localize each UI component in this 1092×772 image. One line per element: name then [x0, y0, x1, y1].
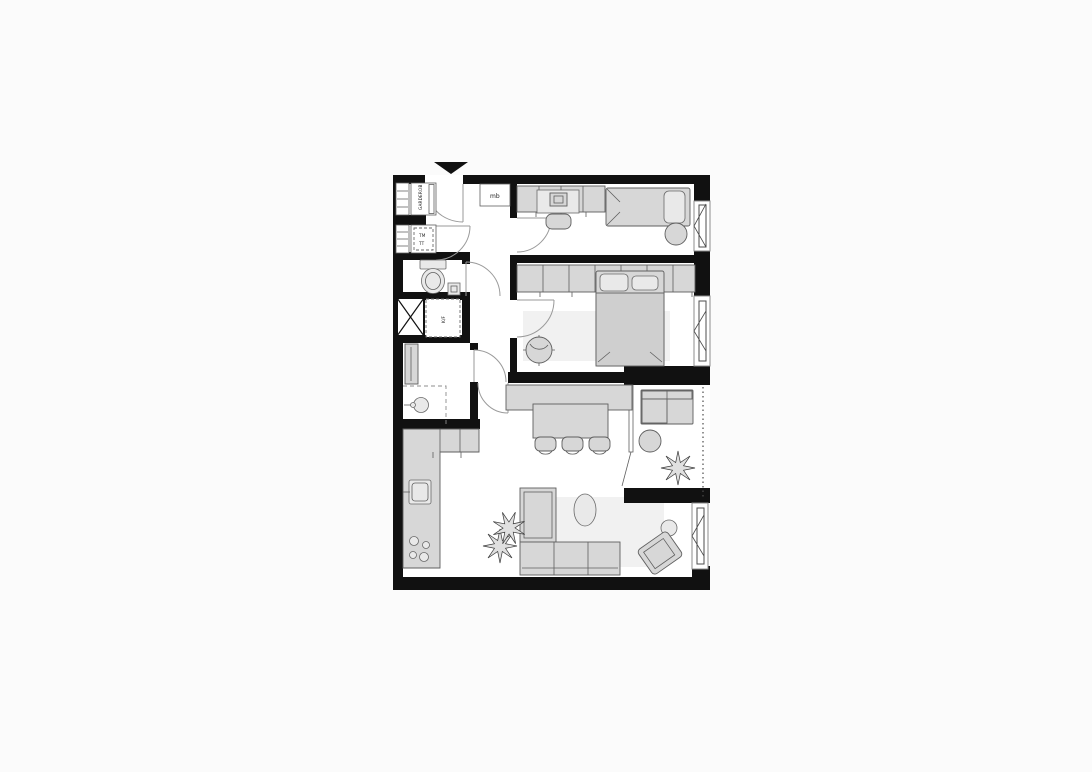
appliance-label: K/F: [441, 315, 446, 323]
hall-shelf-unit-2: [396, 225, 409, 253]
bedroom2-bed: [596, 271, 664, 366]
bedroom2-window: [694, 296, 710, 366]
balcony-plant: [661, 451, 695, 485]
living-room-window: [692, 503, 708, 569]
toilet: [420, 260, 446, 294]
sofa-chaise: [520, 488, 556, 542]
service-row: K/F: [397, 298, 460, 337]
wall-hall-bedroom2-upper: [510, 263, 517, 300]
laundry-label-line2: TT: [418, 241, 425, 246]
wall-hall-bedroom2-lower: [510, 338, 517, 374]
wall-right-between-windows: [694, 251, 710, 296]
burner-1: [410, 537, 419, 546]
floor-drain-outer: [448, 283, 460, 295]
shaft: [397, 298, 424, 336]
bedroom1-window: [694, 201, 710, 251]
bedroom2-window-sash: [699, 301, 706, 361]
dining-chair-3: [589, 437, 610, 451]
wardrobe-cabinet-box: [411, 183, 436, 215]
wall-balcony-bottom: [624, 488, 710, 503]
meter-box-label: mb: [490, 193, 500, 200]
wall-shower-bottom: [393, 419, 480, 429]
dining-chair-1: [535, 437, 556, 451]
shower-radiator: [405, 344, 418, 384]
dining-chair-2: [562, 437, 583, 451]
hall-closet-shelf-unit: [396, 183, 409, 215]
balcony-sofa: [641, 390, 693, 424]
fridge-freezer-space: K/F: [426, 299, 460, 337]
hall-laundry-cabinet: TM TT: [411, 225, 436, 253]
wall-shower-right-stub: [470, 343, 478, 350]
shower-mixer-knob: [411, 403, 416, 408]
floor-plan: GARDEROB TM TT mb: [0, 0, 1092, 772]
toilet-tank: [420, 260, 446, 269]
sofa-seats: [520, 542, 620, 575]
balcony-table: [639, 430, 661, 452]
desk-monitor-icon: [550, 193, 567, 206]
wardrobe-cabinet-label: GARDEROB: [418, 184, 423, 210]
wall-right-top-corner: [694, 175, 710, 201]
hall-wardrobe-cabinet: GARDEROB: [411, 183, 436, 215]
balcony-sofa-cushion: [642, 399, 667, 423]
burner-3: [410, 552, 417, 559]
desk-chair: [546, 214, 571, 229]
entrance-arrow-icon: [434, 162, 468, 174]
wall-right-bottom-corner: [692, 566, 710, 590]
wall-bottom: [393, 577, 710, 590]
laundry-label-line1: TM: [418, 233, 426, 238]
wall-bedroom2-dining: [508, 372, 626, 383]
coffee-table: [574, 494, 596, 526]
bedroom1-bed: [606, 188, 690, 226]
floor-drain: [448, 283, 460, 295]
meter-box: mb: [480, 184, 510, 206]
wall-balcony-top: [624, 366, 710, 385]
bed1-pillow: [664, 191, 685, 223]
bed2-pillow-left: [600, 274, 628, 291]
wall-bedroom1-bedroom2: [510, 255, 696, 263]
dining-table: [533, 404, 608, 438]
burner-4: [420, 553, 429, 562]
burner-2: [423, 542, 430, 549]
bed2-pillow-right: [632, 276, 658, 290]
laundry-appliance-space: [414, 228, 433, 250]
bedroom2-chair-seat: [526, 337, 552, 363]
bedroom1-pouf: [665, 223, 687, 245]
wall-hall-bedroom1: [510, 184, 517, 218]
wall-closet-divider: [398, 215, 426, 225]
floor-plan-page: GARDEROB TM TT mb: [0, 0, 1092, 772]
wall-top-right: [463, 175, 710, 184]
